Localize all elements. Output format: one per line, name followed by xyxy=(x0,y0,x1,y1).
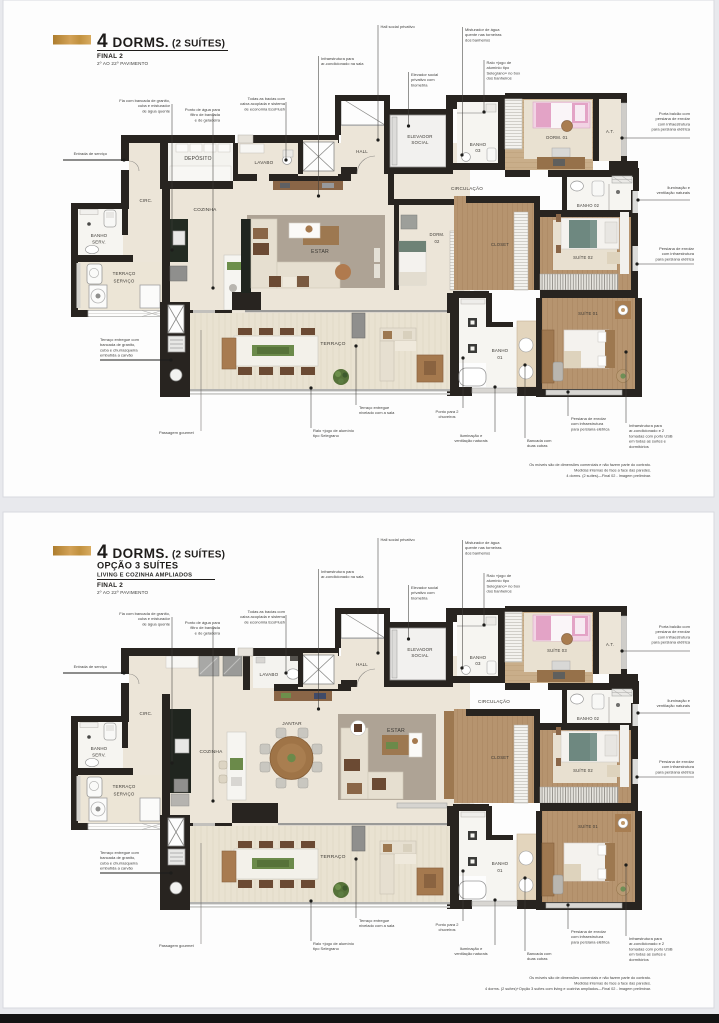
svg-text:Medidas internas de face a fac: Medidas internas de face a face das pare… xyxy=(574,982,651,986)
svg-text:DORM. 01: DORM. 01 xyxy=(546,135,568,140)
svg-text:(2 SUÍTES): (2 SUÍTES) xyxy=(172,548,225,561)
svg-text:LIVING E COZINHA AMPLIADOS: LIVING E COZINHA AMPLIADOS xyxy=(97,573,192,579)
svg-text:4: 4 xyxy=(97,31,108,52)
svg-text:4 dorms. (2 suítes)—Final 02 -: 4 dorms. (2 suítes)—Final 02 - Imagem pr… xyxy=(566,474,651,478)
svg-text:Os móveis são de dimensões com: Os móveis são de dimensões comerciais e … xyxy=(529,463,651,467)
svg-text:4 dorms. (2 suítes)+Opção 3 su: 4 dorms. (2 suítes)+Opção 3 suítes com l… xyxy=(485,987,651,991)
svg-text:Os móveis são de dimensões com: Os móveis são de dimensões comerciais e … xyxy=(529,976,651,980)
svg-text:FINAL 2: FINAL 2 xyxy=(97,53,123,60)
svg-text:SUÍTE 03: SUÍTE 03 xyxy=(547,648,567,653)
svg-text:2º AO 22º PAVIMENTO: 2º AO 22º PAVIMENTO xyxy=(97,61,149,66)
svg-text:OPÇÃO 3 SUÍTES: OPÇÃO 3 SUÍTES xyxy=(97,560,178,571)
svg-text:(2 SUÍTES): (2 SUÍTES) xyxy=(172,37,225,50)
svg-text:FINAL 2: FINAL 2 xyxy=(97,582,123,589)
svg-text:DORMS.: DORMS. xyxy=(113,546,169,561)
svg-text:2º AO 22º PAVIMENTO: 2º AO 22º PAVIMENTO xyxy=(97,590,149,595)
svg-text:Medidas internas de face a fac: Medidas internas de face a face das pare… xyxy=(574,469,651,473)
svg-text:DORMS.: DORMS. xyxy=(113,35,169,50)
